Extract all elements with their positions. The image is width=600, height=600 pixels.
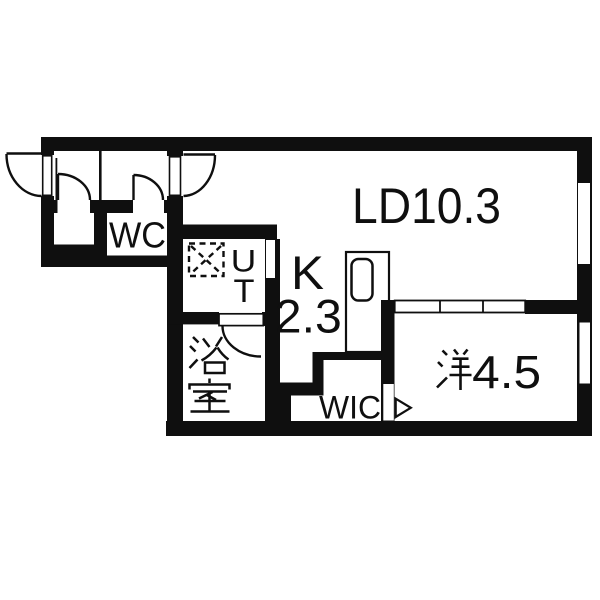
- svg-text:T: T: [234, 273, 255, 309]
- svg-text:2.3: 2.3: [275, 290, 342, 343]
- svg-text:WC: WC: [109, 215, 166, 256]
- svg-text:WIC: WIC: [319, 390, 381, 426]
- svg-text:LD10.3: LD10.3: [352, 177, 501, 234]
- svg-text:4.5: 4.5: [472, 346, 541, 398]
